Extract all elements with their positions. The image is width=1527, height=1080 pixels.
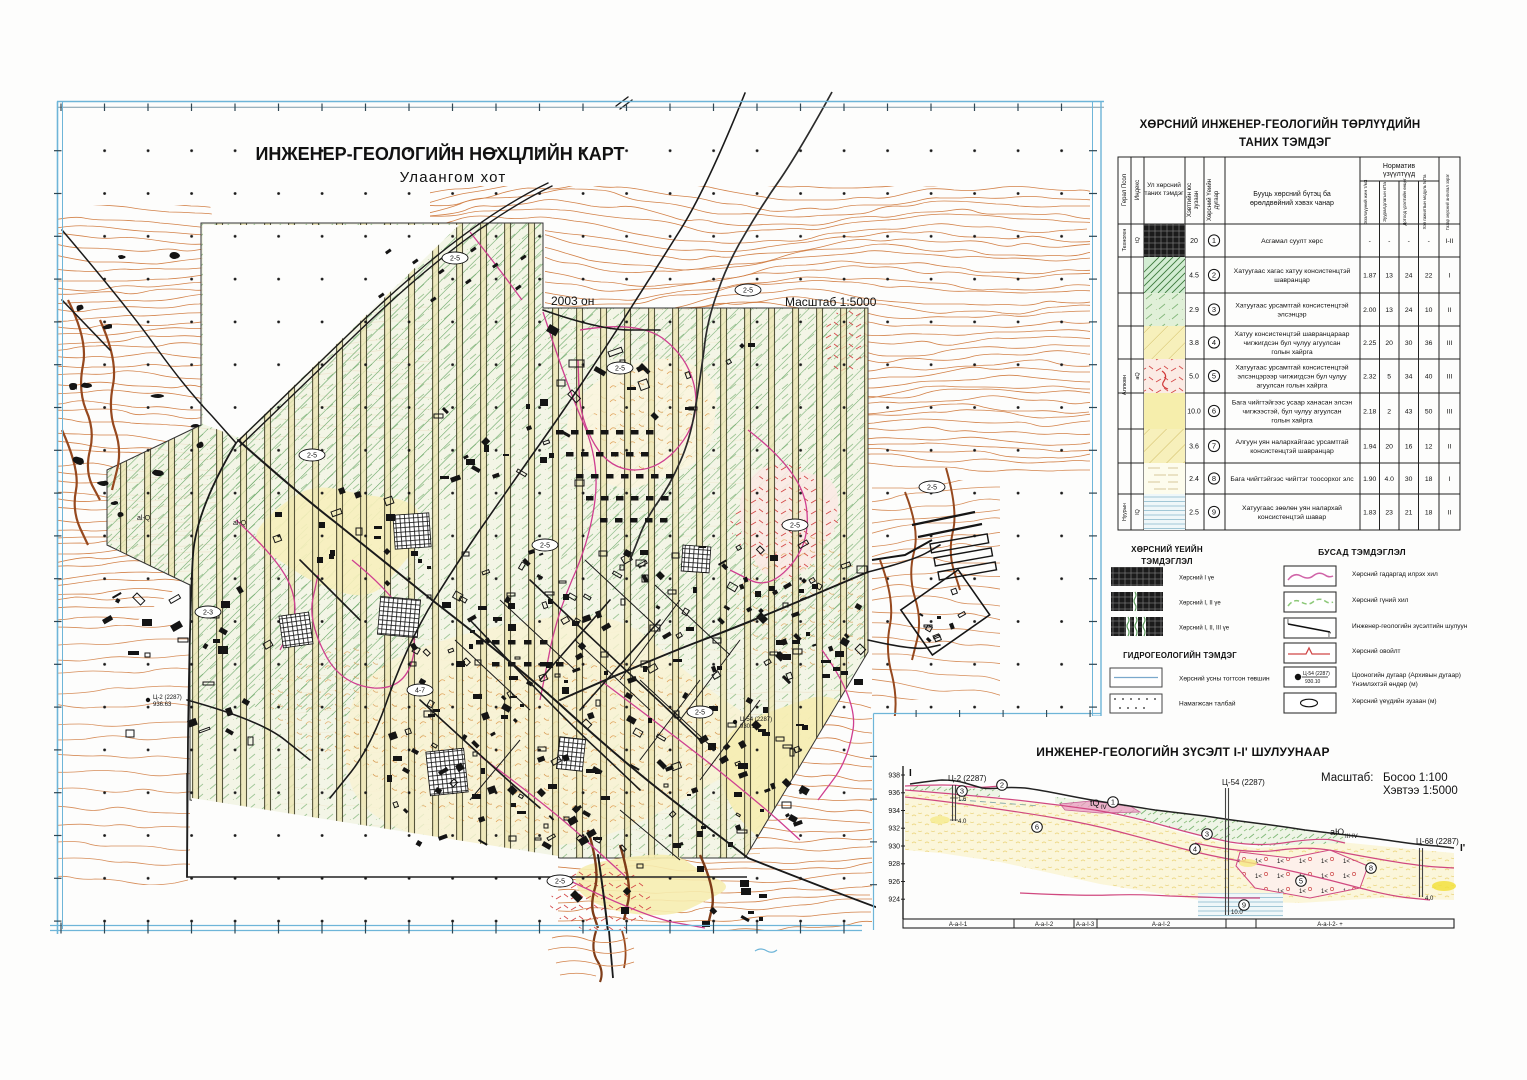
svg-text:Хатуугаас хагас хатуу консисте: Хатуугаас хагас хатуу консистенцтэй	[1234, 267, 1351, 275]
svg-text:Хөрсний I үе: Хөрсний I үе	[1179, 575, 1215, 582]
svg-text:I: I	[1287, 619, 1289, 626]
svg-text:-: -	[1369, 238, 1371, 245]
svg-text:24: 24	[1405, 273, 1413, 280]
svg-text:4.0: 4.0	[1425, 896, 1434, 902]
svg-text:21: 21	[1405, 510, 1413, 517]
svg-text:10: 10	[1425, 307, 1433, 314]
svg-text:Зууралдлагын кПа: Зууралдлагын кПа	[1382, 182, 1387, 222]
svg-text:Газар хөрсний ангилал зэрэг: Газар хөрсний ангилал зэрэг	[1445, 174, 1450, 230]
svg-text:ТАНИХ ТЭМДЭГ: ТАНИХ ТЭМДЭГ	[1239, 137, 1331, 149]
svg-text:938: 938	[888, 772, 900, 779]
svg-text:Техноген: Техноген	[1122, 229, 1128, 252]
svg-text:36: 36	[1425, 340, 1433, 347]
svg-text:22: 22	[1425, 273, 1433, 280]
svg-text:2.4: 2.4	[1189, 476, 1199, 483]
svg-text:ХӨРСНИЙ ИНЖЕНЕР-ГЕОЛОГИЙН ТӨРЛ: ХӨРСНИЙ ИНЖЕНЕР-ГЕОЛОГИЙН ТӨРЛҮҮДИЙН	[1140, 118, 1421, 131]
svg-text:23: 23	[1385, 510, 1393, 517]
svg-text:Инженер-геологийн зүсэлтийн шу: Инженер-геологийн зүсэлтийн шулуун	[1352, 622, 1468, 630]
svg-text:2.18: 2.18	[1363, 409, 1376, 416]
svg-text:4.0: 4.0	[1384, 476, 1394, 483]
svg-text:5: 5	[1387, 374, 1391, 381]
svg-text:924: 924	[888, 897, 900, 904]
svg-text:Хэвтээ 1:5000: Хэвтээ 1:5000	[1383, 785, 1458, 797]
svg-text:43: 43	[1405, 409, 1413, 416]
svg-text:Индекс: Индекс	[1135, 180, 1141, 200]
svg-text:al-Q: al-Q	[137, 515, 151, 522]
svg-text:Норматив: Норматив	[1383, 163, 1416, 170]
svg-text:Ц-54 (2287): Ц-54 (2287)	[1303, 671, 1330, 677]
svg-text:Босоо 1:100: Босоо 1:100	[1383, 772, 1448, 784]
svg-text:8: 8	[1369, 864, 1373, 873]
svg-text:Хэв гажилтын модуль МПа: Хэв гажилтын модуль МПа	[1422, 174, 1427, 229]
svg-text:1.6: 1.6	[958, 797, 967, 803]
svg-text:Ц-2 (2287): Ц-2 (2287)	[153, 695, 182, 701]
svg-text:9: 9	[1242, 901, 1246, 910]
svg-text:5.0: 5.0	[1189, 374, 1199, 381]
svg-text:13: 13	[1385, 273, 1393, 280]
svg-text:5: 5	[1212, 372, 1216, 381]
svg-text:2-5: 2-5	[450, 255, 460, 262]
svg-text:Хатуугаас урсамтгай консистенц: Хатуугаас урсамтгай консистенцтэй	[1235, 302, 1348, 310]
svg-text:Ул хөрсний: Ул хөрсний	[1147, 181, 1181, 189]
svg-text:шавранцар: шавранцар	[1274, 277, 1310, 284]
svg-text:18: 18	[1425, 476, 1433, 483]
svg-text:24: 24	[1405, 307, 1413, 314]
svg-text:8: 8	[1212, 474, 1216, 483]
svg-text:3.6: 3.6	[1189, 444, 1199, 451]
svg-text:ХӨРСНИЙ ҮЕИЙН: ХӨРСНИЙ ҮЕИЙН	[1131, 545, 1203, 554]
svg-text:голын хайрга: голын хайрга	[1271, 348, 1312, 356]
svg-text:II: II	[1448, 510, 1452, 517]
svg-text:Хатуугаас зөөлөн уян налархай: Хатуугаас зөөлөн уян налархай	[1242, 504, 1342, 512]
svg-text:2: 2	[1387, 409, 1391, 416]
svg-text:lQ: lQ	[1135, 509, 1141, 515]
svg-text:6: 6	[1035, 823, 1039, 832]
svg-text:2.00: 2.00	[1363, 307, 1376, 314]
svg-text:930.10: 930.10	[1305, 679, 1321, 685]
svg-text:tQ: tQ	[1135, 236, 1141, 243]
svg-text:А-а-I-1: А-а-I-1	[949, 922, 968, 928]
svg-text:-: -	[1388, 238, 1390, 245]
svg-text:консистенцтэй шавар: консистенцтэй шавар	[1258, 513, 1326, 521]
svg-text:930: 930	[888, 843, 900, 850]
svg-text:Ц-54 (2287): Ц-54 (2287)	[1222, 778, 1265, 787]
svg-text:Хөрсний Үеийн: Хөрсний Үеийн	[1206, 179, 1213, 221]
svg-text:консистенцтэй шавранцар: консистенцтэй шавранцар	[1250, 447, 1334, 455]
svg-text:930.10: 930.10	[740, 724, 759, 730]
svg-text:III: III	[1447, 374, 1453, 381]
svg-text:6: 6	[1212, 407, 1216, 416]
svg-text:2.5: 2.5	[1189, 510, 1199, 517]
svg-text:936: 936	[888, 790, 900, 797]
svg-text:2-5: 2-5	[790, 522, 800, 529]
svg-text:Бага чийгтэйгээс усаар ханасан: Бага чийгтэйгээс усаар ханасан элсэн	[1232, 399, 1353, 407]
svg-text:Хөрсний усны тогтсон төвшин: Хөрсний усны тогтсон төвшин	[1179, 675, 1270, 683]
svg-text:элсэнцэр: элсэнцэр	[1277, 312, 1306, 319]
svg-text:3.8: 3.8	[1189, 340, 1199, 347]
svg-text:30: 30	[1405, 476, 1413, 483]
svg-text:16: 16	[1405, 444, 1413, 451]
svg-text:Герал Псол: Герал Псол	[1122, 173, 1128, 206]
svg-text:Хатуугаас урсамтгай консистенц: Хатуугаас урсамтгай консистенцтэй	[1235, 364, 1348, 372]
svg-text:3: 3	[1205, 830, 1209, 839]
svg-text:өрөлдвөйний хэвэх чанар: өрөлдвөйний хэвэх чанар	[1250, 199, 1334, 207]
svg-text:2-5: 2-5	[540, 542, 550, 549]
svg-text:4: 4	[1193, 845, 1197, 854]
svg-text:II: II	[1448, 307, 1452, 314]
svg-text:2: 2	[1000, 781, 1004, 790]
svg-text:I-II: I-II	[1446, 238, 1454, 245]
svg-text:10.0: 10.0	[1187, 409, 1201, 416]
svg-text:932: 932	[888, 826, 900, 833]
svg-text:III-IV: III-IV	[1345, 834, 1358, 840]
svg-text:30: 30	[1405, 340, 1413, 347]
svg-text:7: 7	[1212, 442, 1216, 451]
svg-text:936.63: 936.63	[153, 702, 172, 708]
svg-text:ИНЖЕНЕР-ГЕОЛОГИЙН НӨХЦЛИЙН КАР: ИНЖЕНЕР-ГЕОЛОГИЙН НӨХЦЛИЙН КАРТ	[255, 143, 624, 164]
svg-text:I': I'	[1460, 843, 1465, 854]
svg-text:Масштаб 1:5000: Масштаб 1:5000	[785, 295, 877, 309]
svg-text:III: III	[1447, 409, 1453, 416]
svg-text:А-а-I-3: А-а-I-3	[1076, 922, 1095, 928]
svg-text:Хөрсний I, II, III үе: Хөрсний I, II, III үе	[1179, 625, 1230, 632]
svg-text:-: -	[1408, 238, 1410, 245]
svg-text:Хөрсний I, II үе: Хөрсний I, II үе	[1179, 600, 1221, 607]
svg-text:голын хайрга: голын хайрга	[1271, 417, 1312, 425]
svg-text:5: 5	[1299, 877, 1303, 886]
svg-text:al-Q: al-Q	[233, 520, 247, 527]
svg-text:Бууць хөрсний бүтэц ба: Бууць хөрсний бүтэц ба	[1253, 190, 1331, 198]
svg-text:III: III	[1447, 340, 1453, 347]
svg-text:2-3: 2-3	[203, 609, 213, 616]
svg-text:А-а-I-2: А-а-I-2	[1152, 922, 1171, 928]
svg-text:2.32: 2.32	[1363, 374, 1376, 381]
svg-text:926: 926	[888, 879, 900, 886]
svg-text:чигжээстэй, бул чулуу агуулсан: чигжээстэй, бул чулуу агуулсан	[1243, 408, 1342, 416]
svg-text:Хатуу консистенцтэй шавранцара: Хатуу консистенцтэй шавранцараар	[1235, 330, 1350, 338]
svg-text:Асгамал суулт хөрс: Асгамал суулт хөрс	[1261, 238, 1323, 245]
svg-text:1: 1	[1212, 236, 1216, 245]
svg-text:Намагжсан талбай: Намагжсан талбай	[1179, 700, 1236, 708]
svg-text:Ц-54 (2287): Ц-54 (2287)	[740, 717, 772, 723]
svg-text:Үнэмлэхтэй өндөр (м): Үнэмлэхтэй өндөр (м)	[1352, 680, 1418, 688]
svg-text:I: I	[909, 768, 912, 779]
svg-text:34: 34	[1405, 374, 1413, 381]
svg-text:3: 3	[1212, 305, 1216, 314]
svg-text:20: 20	[1385, 340, 1393, 347]
svg-text:4.0: 4.0	[958, 819, 967, 825]
svg-text:Хөрсний гадаргад илрэх хил: Хөрсний гадаргад илрэх хил	[1352, 570, 1438, 578]
svg-text:20: 20	[1385, 444, 1393, 451]
svg-text:2-5: 2-5	[307, 452, 317, 459]
svg-text:ИНЖЕНЕР-ГЕОЛОГИЙН ЗҮСЭЛТ I-I': ИНЖЕНЕР-ГЕОЛОГИЙН ЗҮСЭЛТ I-I' ШУЛУУНААР	[1036, 744, 1329, 759]
svg-text:20: 20	[1190, 238, 1198, 245]
svg-text:Бага чийгтэйгээс чийгтэг тоосо: Бага чийгтэйгээс чийгтэг тоосорхог элс	[1230, 475, 1354, 483]
svg-text:1.87: 1.87	[1363, 273, 1376, 280]
svg-text:1.83: 1.83	[1363, 510, 1376, 517]
svg-text:2003 он: 2003 он	[551, 294, 594, 308]
svg-text:928: 928	[888, 861, 900, 868]
svg-text:дугаар: дугаар	[1214, 190, 1220, 209]
svg-text:БУСАД ТЭМДЭГЛЭЛ: БУСАД ТЭМДЭГЛЭЛ	[1318, 547, 1406, 557]
svg-text:2-5: 2-5	[555, 878, 565, 885]
svg-text:Аллювн: Аллювн	[1122, 375, 1128, 395]
svg-text:13: 13	[1385, 307, 1393, 314]
svg-text:3: 3	[960, 787, 964, 796]
svg-text:4.5: 4.5	[1189, 273, 1199, 280]
svg-text:Хөрсний овойлт: Хөрсний овойлт	[1352, 647, 1401, 655]
svg-text:2-5: 2-5	[743, 287, 753, 294]
svg-text:Хэвтгийн юс: Хэвтгийн юс	[1186, 183, 1193, 217]
svg-text:tQ: tQ	[1090, 798, 1100, 808]
svg-text:2-5: 2-5	[695, 709, 705, 716]
svg-text:Дотоод үрэлтийн өнцөг: Дотоод үрэлтийн өнцөг	[1402, 178, 1407, 226]
svg-text:аЮ: аЮ	[1330, 827, 1344, 837]
svg-text:9: 9	[1212, 508, 1216, 517]
svg-text:Улаангом хот: Улаангом хот	[400, 169, 507, 186]
svg-text:ТЭМДЭГЛЭЛ: ТЭМДЭГЛЭЛ	[1141, 557, 1193, 566]
svg-text:чигжигдсэн бул чулуу агуулсан: чигжигдсэн бул чулуу агуулсан	[1244, 339, 1341, 347]
svg-text:-: -	[1428, 238, 1430, 245]
svg-text:II: II	[1448, 444, 1452, 451]
svg-text:ГИДРОГЕОЛОГИЙН ТЭМДЭГ: ГИДРОГЕОЛОГИЙН ТЭМДЭГ	[1123, 651, 1237, 660]
svg-text:1: 1	[1111, 798, 1115, 807]
svg-text:Хөрсний гүний хил: Хөрсний гүний хил	[1352, 596, 1409, 604]
svg-text:2-5: 2-5	[927, 484, 937, 491]
svg-text:Ц-68 (2287): Ц-68 (2287)	[1416, 837, 1459, 846]
svg-text:Нуурын: Нуурын	[1122, 503, 1128, 521]
svg-text:1.94: 1.94	[1363, 444, 1376, 451]
svg-text:I': I'	[1328, 632, 1331, 639]
svg-text:таних тэмдэг: таних тэмдэг	[1144, 190, 1184, 197]
svg-text:2.25: 2.25	[1363, 340, 1376, 347]
svg-text:10.0: 10.0	[1231, 910, 1243, 916]
svg-text:4: 4	[1212, 338, 1216, 347]
svg-text:50: 50	[1425, 409, 1433, 416]
svg-text:Эзэлхүүний жин т/м3: Эзэлхүүний жин т/м3	[1362, 179, 1368, 224]
svg-text:А-а-I-2- +: А-а-I-2- +	[1317, 922, 1343, 928]
svg-text:4-7: 4-7	[415, 687, 425, 694]
svg-text:Масштаб:: Масштаб:	[1321, 772, 1373, 784]
svg-text:2.9: 2.9	[1189, 307, 1199, 314]
svg-text:18: 18	[1425, 510, 1433, 517]
svg-text:12: 12	[1425, 444, 1433, 451]
svg-text:aQ: aQ	[1135, 372, 1141, 380]
svg-text:агуулсан голын хайрга: агуулсан голын хайрга	[1257, 382, 1328, 390]
svg-text:I: I	[1449, 476, 1451, 483]
svg-text:Хөрсний үеүдийн зузаан (м): Хөрсний үеүдийн зузаан (м)	[1352, 697, 1437, 705]
svg-text:Цооногийн дугаар (Архивын дуга: Цооногийн дугаар (Архивын дугаар)	[1352, 671, 1461, 679]
svg-text:I: I	[1449, 273, 1451, 280]
svg-text:2: 2	[1212, 271, 1216, 280]
svg-text:Ц-2 (2287): Ц-2 (2287)	[948, 774, 987, 783]
svg-text:зузаан: зузаан	[1194, 191, 1200, 209]
svg-text:элсэнцэрээр чигжигдсэн бул чул: элсэнцэрээр чигжигдсэн бул чулуу	[1237, 373, 1347, 381]
svg-text:40: 40	[1425, 374, 1433, 381]
svg-text:Алгуун уян налархайгаас урсамт: Алгуун уян налархайгаас урсамтгай	[1235, 438, 1348, 446]
svg-text:үзүүлтүүд: үзүүлтүүд	[1383, 171, 1415, 178]
svg-text:IV: IV	[1101, 805, 1107, 811]
svg-text:934: 934	[888, 808, 900, 815]
svg-text:2-5: 2-5	[615, 365, 625, 372]
svg-text:А-а-I-2: А-а-I-2	[1035, 922, 1054, 928]
svg-text:1.90: 1.90	[1363, 476, 1376, 483]
